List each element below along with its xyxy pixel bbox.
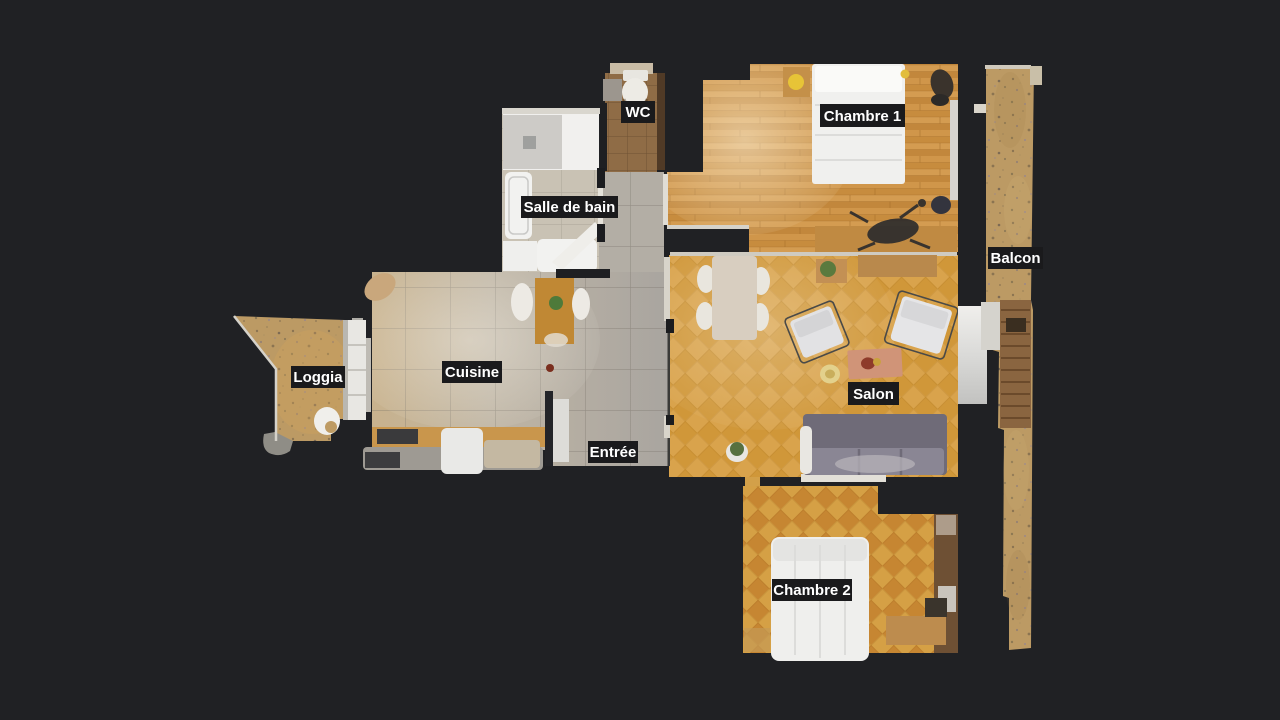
svg-text:Salon: Salon	[853, 386, 894, 403]
svg-text:Loggia: Loggia	[293, 369, 343, 386]
svg-text:Chambre 1: Chambre 1	[824, 108, 902, 125]
svg-text:Chambre 2: Chambre 2	[773, 582, 851, 599]
svg-text:Salle de bain: Salle de bain	[524, 199, 616, 216]
svg-text:Entrée: Entrée	[590, 444, 637, 461]
svg-text:Balcon: Balcon	[990, 250, 1040, 267]
svg-text:WC: WC	[626, 104, 651, 121]
svg-text:Cuisine: Cuisine	[445, 364, 499, 381]
